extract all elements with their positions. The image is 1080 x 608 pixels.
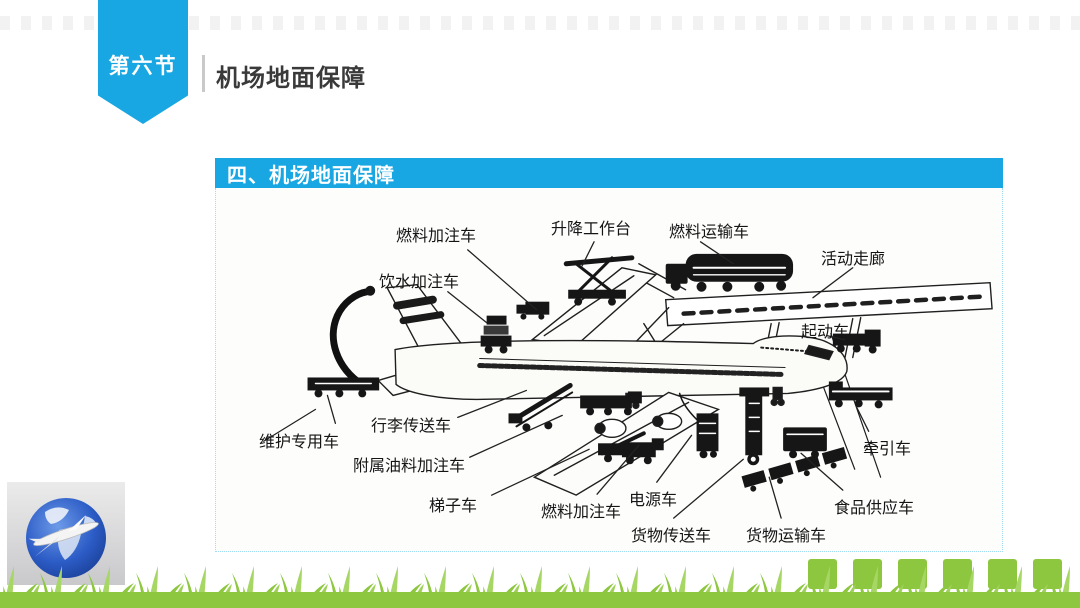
deco-square xyxy=(898,559,927,589)
globe-icon xyxy=(7,482,125,585)
deco-squares xyxy=(808,559,1062,589)
label-water-truck: 饮水加注车 xyxy=(379,268,459,292)
label-fuel-filling-truck-bottom: 燃料加注车 xyxy=(541,498,621,522)
diagram-label-layer: 燃料加注车升降工作台燃料运输车活动走廊饮水加注车起动车维护专用车行李传送车附属油… xyxy=(216,188,1002,551)
deco-square xyxy=(808,559,837,589)
section-ribbon: 第六节 xyxy=(98,0,188,124)
label-power-truck: 电源车 xyxy=(629,486,677,510)
panel-header: 四、机场地面保障 xyxy=(215,158,1003,188)
label-ladder-truck: 梯子车 xyxy=(429,492,477,516)
slide: 第六节 机场地面保障 四、机场地面保障 xyxy=(0,0,1080,608)
label-baggage-conveyor: 行李传送车 xyxy=(371,412,451,436)
deco-square xyxy=(853,559,882,589)
deco-square xyxy=(988,559,1017,589)
label-fuel-filling-truck-top: 燃料加注车 xyxy=(396,222,476,246)
header-divider xyxy=(202,55,205,92)
globe-airplane-image xyxy=(7,482,125,585)
label-starter-truck: 起动车 xyxy=(801,318,849,342)
label-cargo-transport: 货物运输车 xyxy=(746,522,826,546)
label-aux-oil-truck: 附属油料加注车 xyxy=(353,452,465,476)
label-fuel-transport-truck: 燃料运输车 xyxy=(669,218,749,242)
diagram-area: 燃料加注车升降工作台燃料运输车活动走廊饮水加注车起动车维护专用车行李传送车附属油… xyxy=(215,188,1003,552)
label-mobile-corridor: 活动走廊 xyxy=(821,245,885,269)
content-panel: 四、机场地面保障 xyxy=(215,158,1003,552)
label-maintenance-vehicle: 维护专用车 xyxy=(259,428,339,452)
panel-title: 四、机场地面保障 xyxy=(227,159,395,188)
label-lift-platform: 升降工作台 xyxy=(551,215,631,239)
deco-square xyxy=(943,559,972,589)
label-cargo-conveyor: 货物传送车 xyxy=(631,522,711,546)
deco-square xyxy=(1033,559,1062,589)
section-ribbon-label: 第六节 xyxy=(109,50,178,124)
page-title: 机场地面保障 xyxy=(216,58,366,93)
label-food-supply-truck: 食品供应车 xyxy=(834,494,914,518)
label-tow-truck: 牵引车 xyxy=(863,435,911,459)
